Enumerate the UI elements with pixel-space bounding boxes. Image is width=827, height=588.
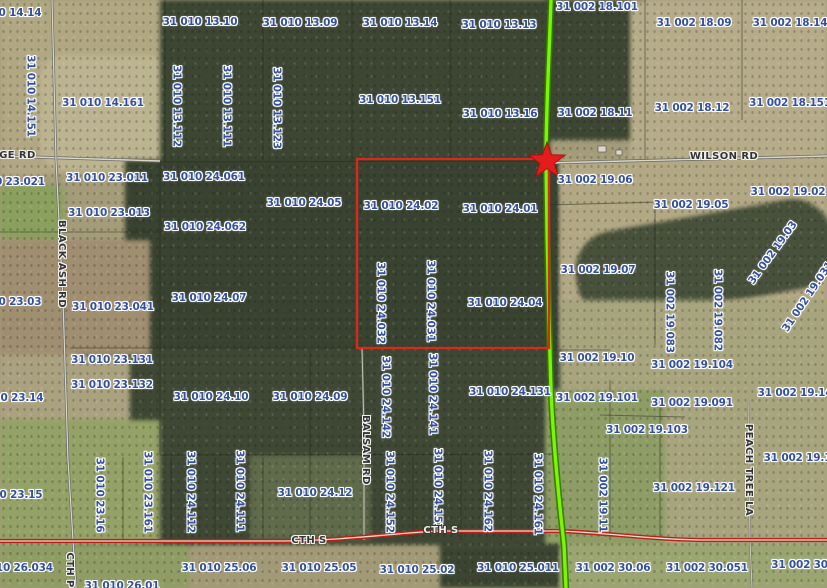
selection-rectangle [357,159,549,348]
farm-buildings [598,146,622,155]
wilson-road-line [546,156,827,163]
map-overlay-layer [0,0,827,588]
black-ash-road-line [52,0,76,588]
map-canvas[interactable]: 31 010 14.1431 010 13.1031 010 13.0931 0… [0,0,827,588]
parcel-boundary-lines [0,0,742,540]
balsam-road-line [362,347,364,540]
ridge-road-line [0,156,160,161]
peach-tree-lane-line [748,400,752,588]
